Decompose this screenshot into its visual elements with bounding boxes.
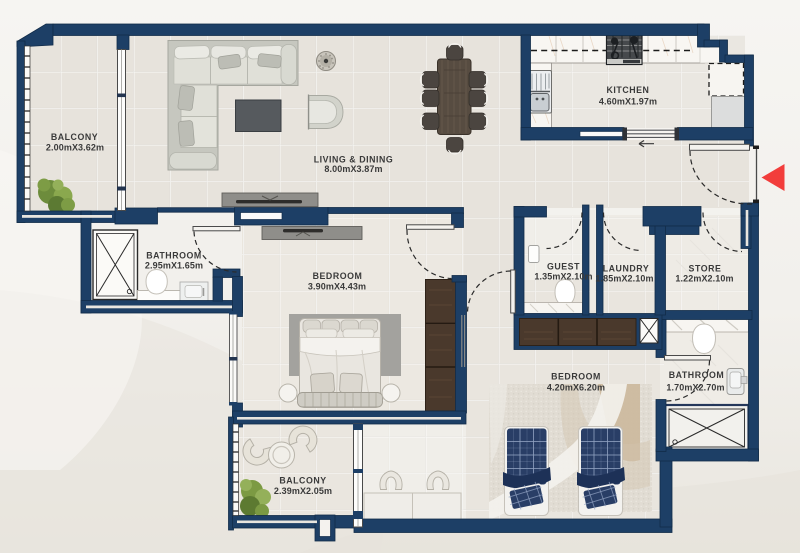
svg-text:BATHROOM: BATHROOM [669,370,725,380]
svg-text:GUEST: GUEST [547,262,580,272]
svg-text:LIVING & DINING: LIVING & DINING [314,155,394,165]
svg-text:BEDROOM: BEDROOM [313,271,363,281]
svg-text:BEDROOM: BEDROOM [551,372,601,382]
svg-text:2.00mX3.62m: 2.00mX3.62m [46,143,104,153]
svg-text:1.35mX2.10m: 1.35mX2.10m [534,272,592,282]
svg-text:1.22mX2.10m: 1.22mX2.10m [675,274,733,284]
svg-text:4.20mX6.20m: 4.20mX6.20m [547,383,605,393]
svg-text:BALCONY: BALCONY [279,476,326,486]
svg-text:3.90mX4.43m: 3.90mX4.43m [308,282,366,292]
svg-text:2.95mX1.65m: 2.95mX1.65m [145,261,203,271]
svg-text:2.39mX2.05m: 2.39mX2.05m [274,486,332,496]
svg-text:KITCHEN: KITCHEN [607,85,650,95]
svg-text:4.60mX1.97m: 4.60mX1.97m [599,97,657,107]
svg-text:BALCONY: BALCONY [51,132,98,142]
svg-text:1.70mX2.70m: 1.70mX2.70m [666,383,724,393]
svg-text:1.85mX2.10m: 1.85mX2.10m [595,274,653,284]
svg-text:LAUNDRY: LAUNDRY [603,264,650,274]
svg-text:8.00mX3.87m: 8.00mX3.87m [324,164,382,174]
svg-text:BATHROOM: BATHROOM [146,251,202,261]
svg-text:STORE: STORE [689,264,722,274]
